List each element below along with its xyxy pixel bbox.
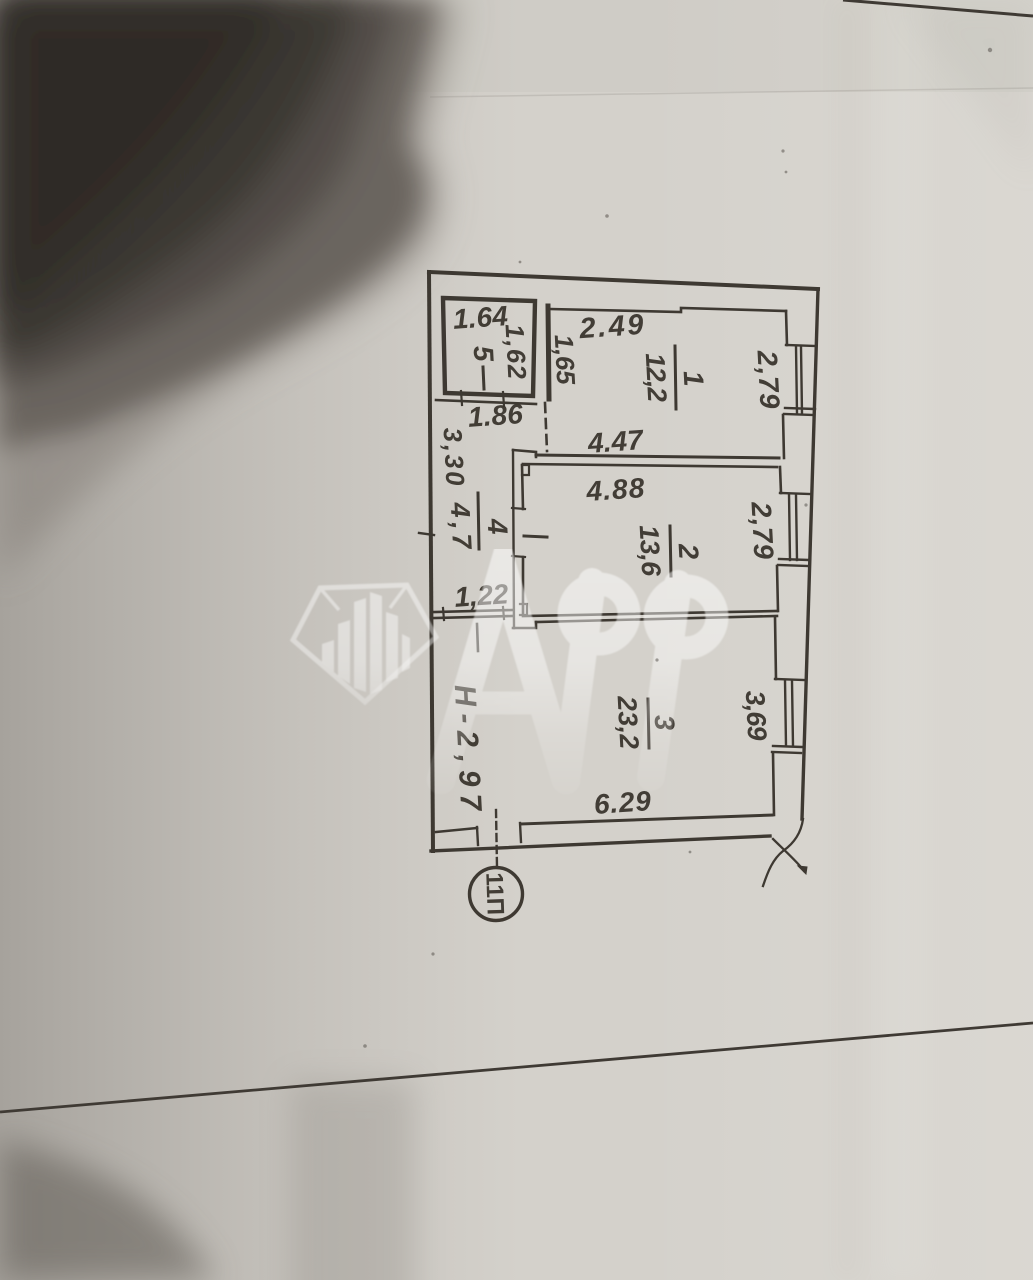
svg-text:2,79: 2,79 xyxy=(745,500,779,560)
svg-text:23,2: 23,2 xyxy=(612,694,645,749)
svg-text:3,69: 3,69 xyxy=(740,690,773,742)
svg-text:2: 2 xyxy=(673,542,705,561)
svg-text:4.88: 4.88 xyxy=(584,472,645,507)
svg-text:1: 1 xyxy=(678,370,710,387)
svg-text:4,7: 4,7 xyxy=(445,501,478,551)
svg-text:4: 4 xyxy=(482,517,514,536)
svg-text:1.86: 1.86 xyxy=(467,398,524,433)
svg-text:13,6: 13,6 xyxy=(634,524,667,577)
svg-text:5: 5 xyxy=(468,345,500,363)
svg-text:11П: 11П xyxy=(480,872,508,916)
svg-text:1,62: 1,62 xyxy=(500,323,533,380)
svg-text:6.29: 6.29 xyxy=(593,785,652,820)
svg-text:4.47: 4.47 xyxy=(586,424,645,459)
svg-text:3,30: 3,30 xyxy=(437,427,470,487)
svg-text:12,2: 12,2 xyxy=(640,352,673,403)
svg-text:2,79: 2,79 xyxy=(751,349,785,410)
svg-text:1,65: 1,65 xyxy=(549,334,582,386)
svg-text:2.49: 2.49 xyxy=(577,309,644,345)
